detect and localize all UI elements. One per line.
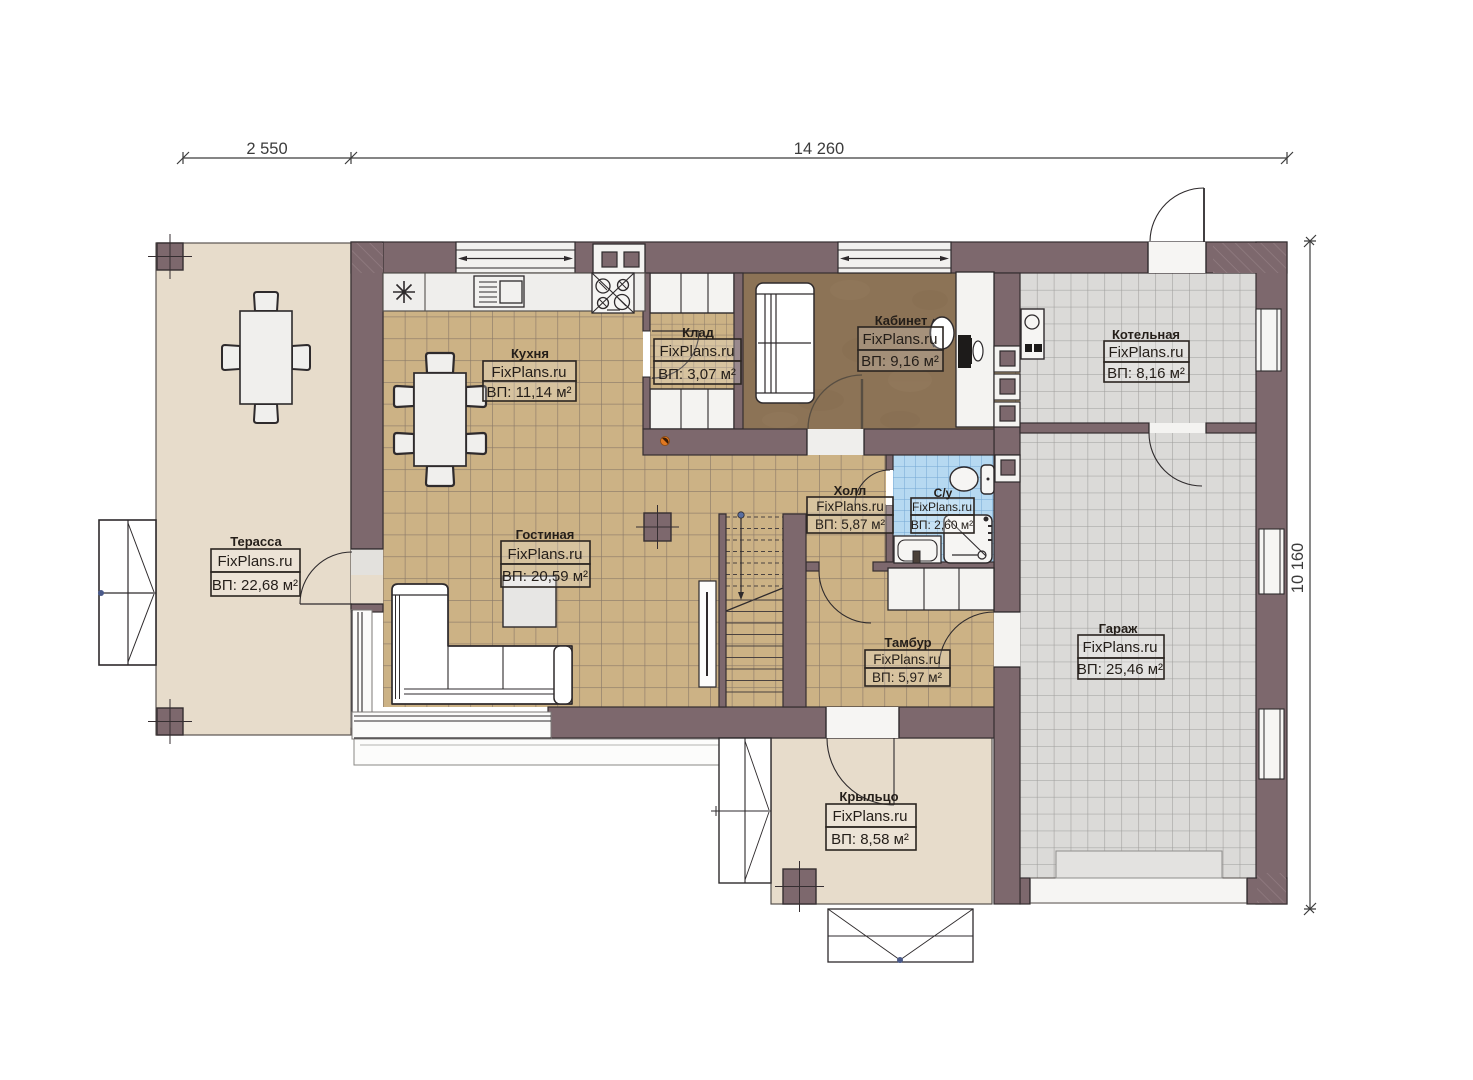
svg-text:FixPlans.ru: FixPlans.ru <box>1108 344 1183 361</box>
svg-text:ВП: 5,87 м²: ВП: 5,87 м² <box>815 517 886 532</box>
svg-text:Кухня: Кухня <box>511 346 549 361</box>
svg-text:14 260: 14 260 <box>794 140 844 158</box>
svg-text:Холл: Холл <box>834 483 867 498</box>
svg-text:ВП: 25,46 м²: ВП: 25,46 м² <box>1077 661 1163 678</box>
svg-text:Крыльцо: Крыльцо <box>839 789 898 804</box>
svg-text:Клад: Клад <box>682 325 714 340</box>
svg-text:Гараж: Гараж <box>1099 621 1139 636</box>
svg-text:С/у: С/у <box>934 486 953 500</box>
svg-text:ВП: 20,59 м²: ВП: 20,59 м² <box>502 568 588 585</box>
svg-text:FixPlans.ru: FixPlans.ru <box>832 808 907 825</box>
svg-text:Кабинет: Кабинет <box>875 313 928 328</box>
svg-text:FixPlans.ru: FixPlans.ru <box>862 331 937 348</box>
svg-text:FixPlans.ru: FixPlans.ru <box>912 500 972 514</box>
svg-text:ВП: 22,68 м²: ВП: 22,68 м² <box>212 577 298 594</box>
svg-text:ВП: 9,16 м²: ВП: 9,16 м² <box>861 353 939 370</box>
svg-text:FixPlans.ru: FixPlans.ru <box>491 364 566 381</box>
svg-text:ВП: 5,97 м²: ВП: 5,97 м² <box>872 670 943 685</box>
svg-text:FixPlans.ru: FixPlans.ru <box>816 499 884 514</box>
svg-text:ВП: 2,60 м²: ВП: 2,60 м² <box>911 518 973 532</box>
svg-text:Тамбур: Тамбур <box>884 635 931 650</box>
svg-text:Гостиная: Гостиная <box>516 527 575 542</box>
svg-text:Котельная: Котельная <box>1112 327 1180 342</box>
svg-text:FixPlans.ru: FixPlans.ru <box>507 546 582 563</box>
svg-text:ВП: 11,14 м²: ВП: 11,14 м² <box>486 384 571 401</box>
svg-text:ВП: 8,58 м²: ВП: 8,58 м² <box>831 831 909 848</box>
svg-text:FixPlans.ru: FixPlans.ru <box>659 343 734 360</box>
svg-text:10 160: 10 160 <box>1289 543 1307 593</box>
svg-text:ВП: 3,07 м²: ВП: 3,07 м² <box>658 366 736 383</box>
svg-text:ВП: 8,16 м²: ВП: 8,16 м² <box>1107 365 1185 382</box>
svg-text:FixPlans.ru: FixPlans.ru <box>873 652 941 667</box>
svg-text:FixPlans.ru: FixPlans.ru <box>217 553 292 570</box>
svg-text:2 550: 2 550 <box>246 140 287 158</box>
svg-text:FixPlans.ru: FixPlans.ru <box>1082 639 1157 656</box>
svg-text:Терасса: Терасса <box>230 534 282 549</box>
